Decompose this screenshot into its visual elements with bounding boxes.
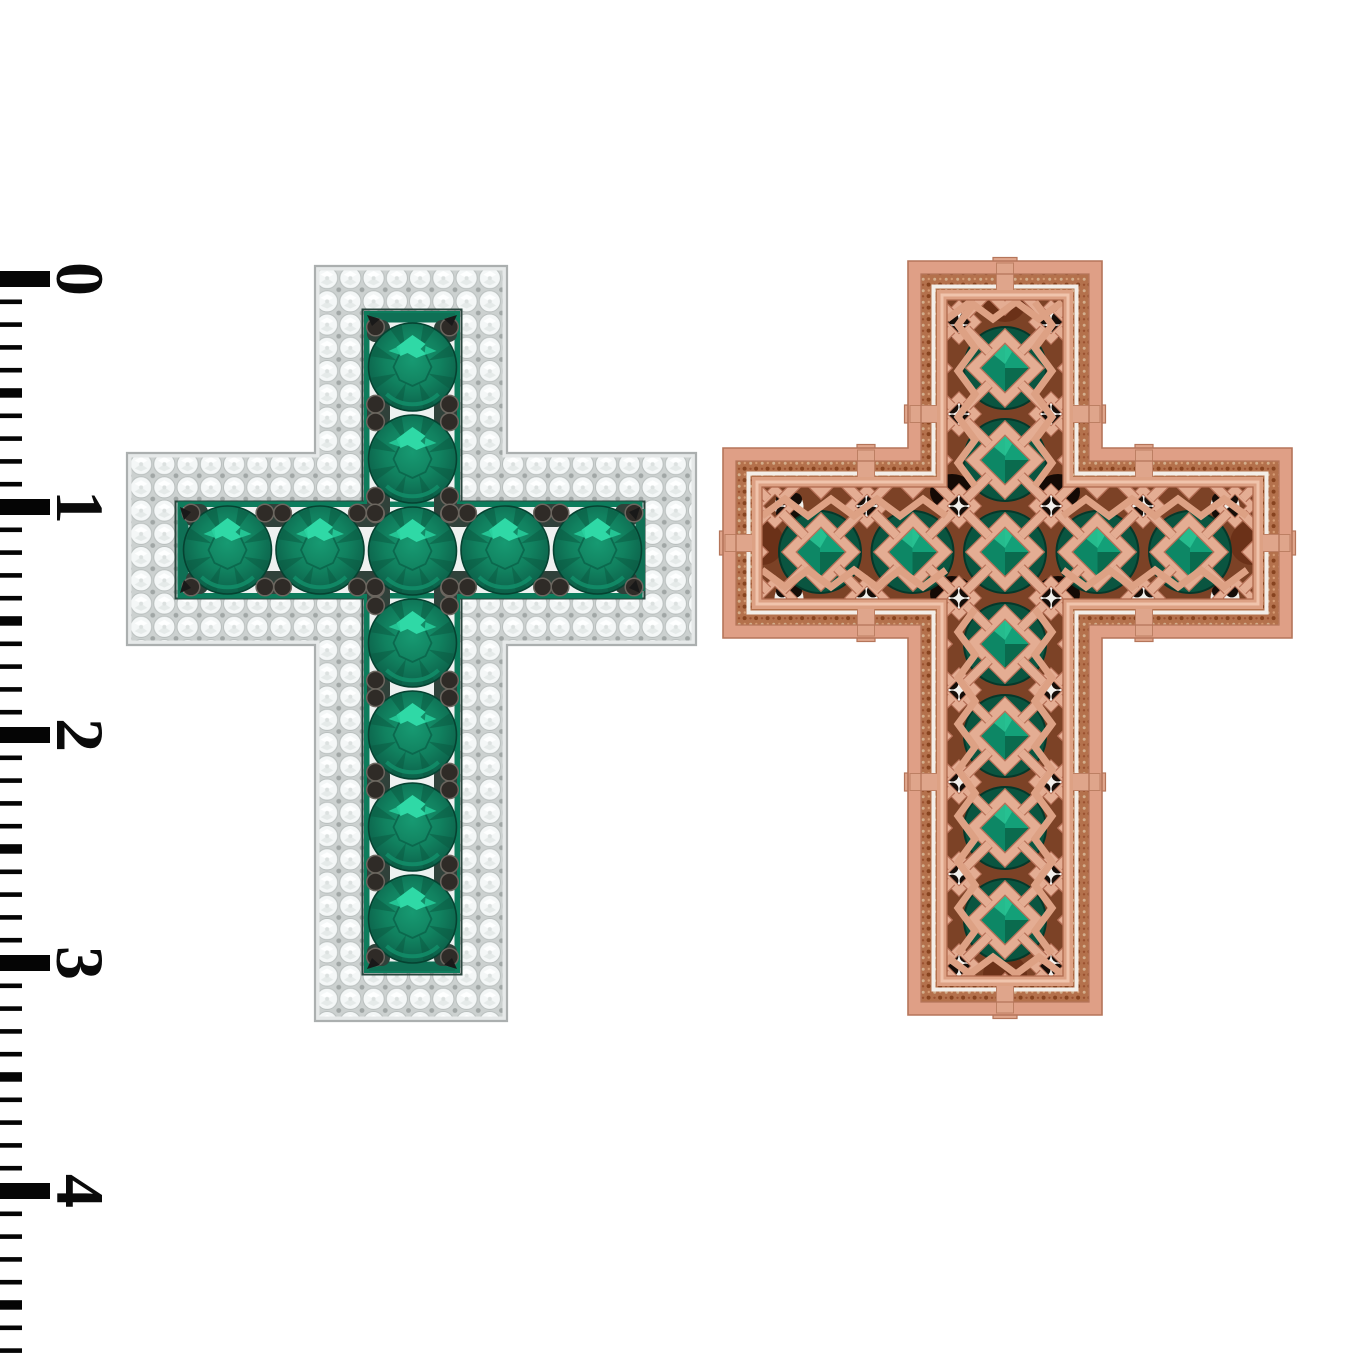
svg-text:2: 2 [42, 718, 118, 752]
svg-text:4: 4 [42, 1174, 118, 1208]
svg-text:0: 0 [42, 262, 118, 296]
svg-text:3: 3 [42, 946, 118, 980]
svg-text:1: 1 [42, 490, 118, 524]
